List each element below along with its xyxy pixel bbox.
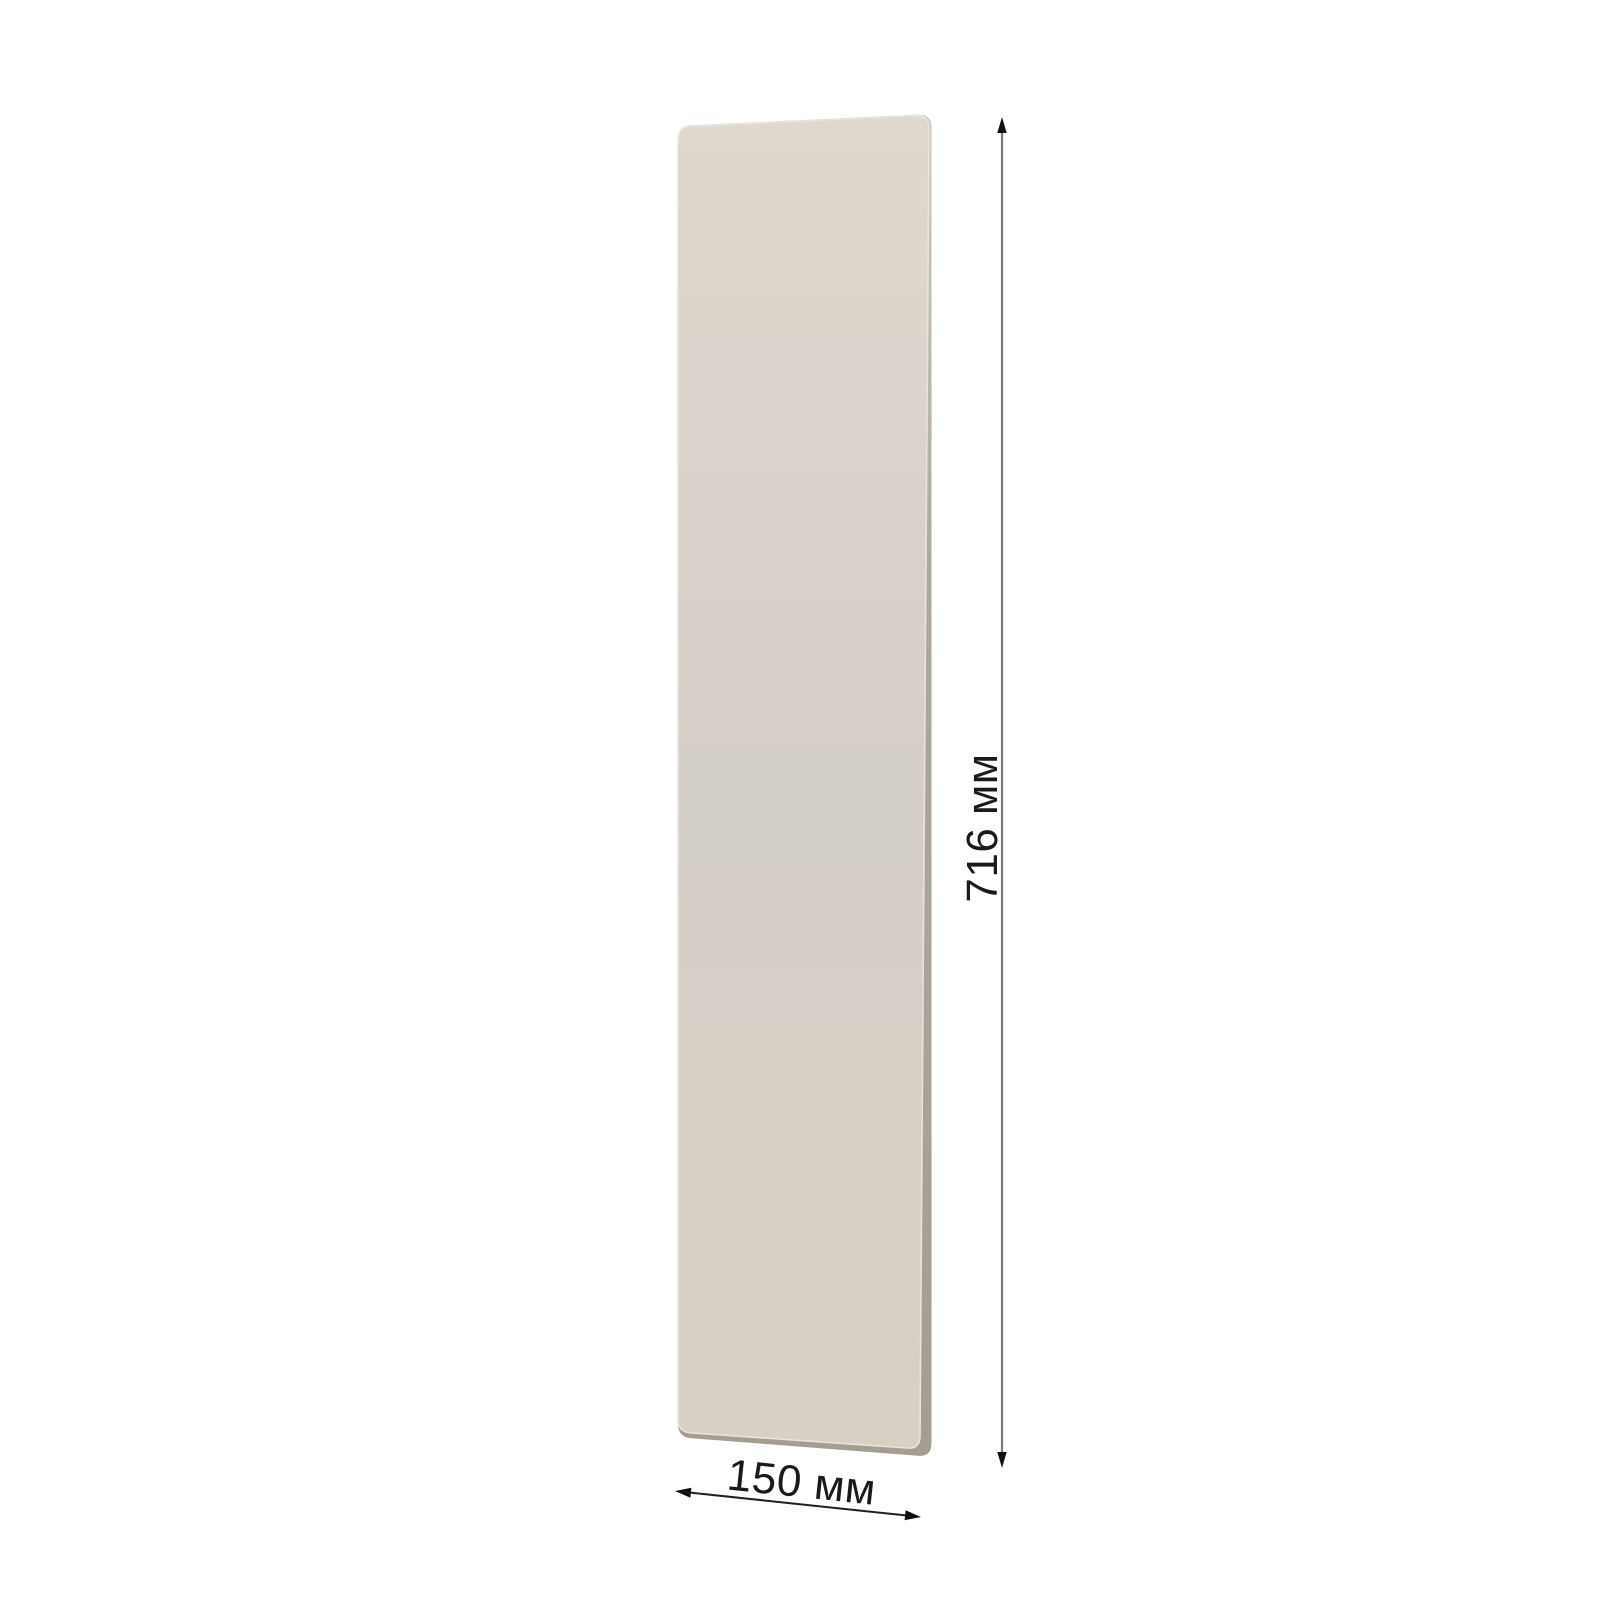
- arrow-left-icon: [675, 1488, 691, 1498]
- arrow-down-icon: [997, 1452, 1006, 1468]
- product-image: 716 мм 150 мм: [0, 0, 1600, 1600]
- width-dimension-label: 150 мм: [725, 1450, 878, 1514]
- height-dimension: 716 мм: [958, 117, 1007, 1468]
- height-dimension-label: 716 мм: [958, 753, 1007, 902]
- width-dimension: 150 мм: [675, 1450, 921, 1520]
- arrow-right-icon: [905, 1510, 921, 1520]
- panel-front-face: [678, 116, 929, 1448]
- product-dimension-figure: 716 мм 150 мм: [0, 0, 1600, 1600]
- arrow-up-icon: [997, 117, 1006, 133]
